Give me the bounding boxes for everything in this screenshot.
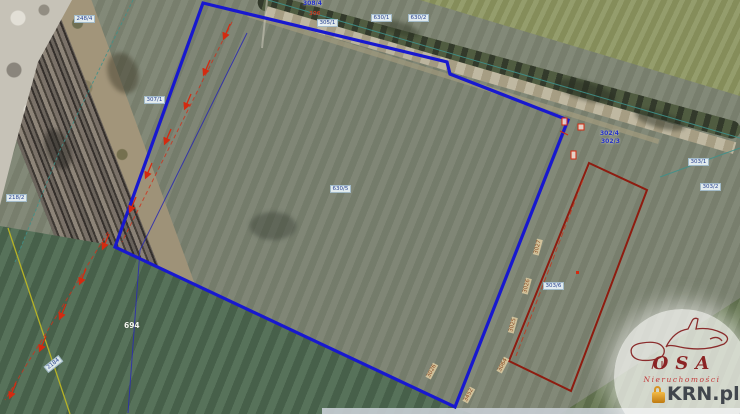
parcel-label: 630/1 <box>371 14 392 22</box>
parcel-label: 630/5 <box>330 185 351 193</box>
primary-parcel-boundary <box>115 3 568 407</box>
agency-watermark: OSA Nieruchomości KRN.pl <box>614 309 740 414</box>
parcel-label: 303/6 <box>543 282 564 290</box>
parcel-label: 218/2 <box>6 194 27 202</box>
cadastral-map: 248/4 308/4 306 305/1 630/1 630/2 307/1 … <box>0 0 740 414</box>
parcel-label: 308/4 <box>303 1 322 8</box>
parcel-label: 303/1 <box>688 158 709 166</box>
portal-name: KRN.pl <box>667 383 740 405</box>
survey-marks <box>560 118 584 274</box>
parcel-label: 248/4 <box>74 15 95 23</box>
parcel-label: 306 <box>309 11 320 17</box>
parcel-label: 694 <box>124 322 140 331</box>
parcel-label: 307/1 <box>144 96 165 104</box>
parcel-label: 302/4 <box>600 131 619 138</box>
krn-watermark: KRN.pl <box>652 383 740 405</box>
parcel-label: 305/1 <box>317 19 338 27</box>
padlock-icon <box>652 386 665 403</box>
parcel-label: 303/2 <box>700 183 721 191</box>
parcel-label: 630/2 <box>408 14 429 22</box>
agency-name: OSA <box>614 353 740 374</box>
parcel-label: 302/3 <box>601 139 620 146</box>
cadastral-yellow-line <box>8 228 70 414</box>
